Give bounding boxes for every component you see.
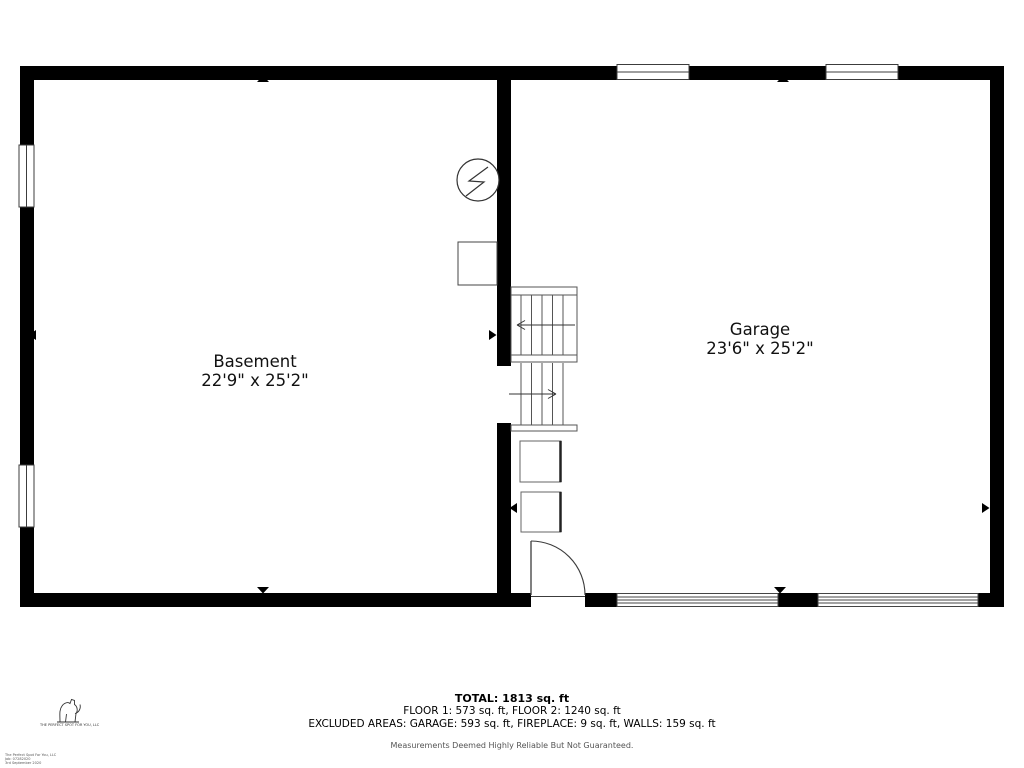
fine-print-line-3: 3rd September 2020 bbox=[5, 761, 95, 765]
area-summary: TOTAL: 1813 sq. ft FLOOR 1: 573 sq. ft, … bbox=[0, 693, 1024, 753]
center-wall-upper bbox=[497, 66, 511, 366]
stairs-upper-run-icon bbox=[511, 287, 577, 362]
garage-room-name: Garage bbox=[635, 320, 885, 339]
garage-door-right-icon bbox=[818, 594, 978, 607]
marker-basement-bottom-icon bbox=[257, 587, 269, 594]
marker-garage-bottom-icon bbox=[774, 587, 786, 594]
garage-room-dimensions: 23'6" x 25'2" bbox=[635, 339, 885, 358]
garage-top-window-right-icon bbox=[826, 65, 898, 80]
floor-areas-text: FLOOR 1: 573 sq. ft, FLOOR 2: 1240 sq. f… bbox=[0, 705, 1024, 717]
excluded-areas-text: EXCLUDED AREAS: GARAGE: 593 sq. ft, FIRE… bbox=[0, 718, 1024, 730]
company-name-text: THE PERFECT SPOT FOR YOU, LLC bbox=[40, 723, 88, 727]
center-wall-lower bbox=[497, 423, 511, 607]
garage-door-left-icon bbox=[617, 594, 778, 607]
garage-top-window-left-icon bbox=[617, 65, 689, 80]
electrical-meter-icon bbox=[457, 159, 499, 201]
disclaimer-text: Measurements Deemed Highly Reliable But … bbox=[0, 740, 1024, 752]
marker-garage-right-icon bbox=[982, 503, 990, 513]
basement-left-window-lower-icon bbox=[19, 465, 34, 527]
garage-room-label: Garage 23'6" x 25'2" bbox=[635, 320, 885, 358]
basement-room-name: Basement bbox=[130, 352, 380, 371]
entry-door-icon bbox=[531, 541, 585, 607]
fine-print: The Perfect Spot For You, LLC Job: 07282… bbox=[5, 753, 95, 765]
floor-plan-page: Basement 22'9" x 25'2" Garage 23'6" x 25… bbox=[0, 0, 1024, 768]
marker-basement-right-icon bbox=[489, 330, 497, 340]
total-area-text: TOTAL: 1813 sq. ft bbox=[0, 693, 1024, 705]
right-wall bbox=[990, 66, 1004, 607]
stairs-lower-run-icon bbox=[509, 363, 577, 431]
basement-room-dimensions: 22'9" x 25'2" bbox=[130, 371, 380, 390]
windows bbox=[19, 65, 898, 528]
equipment-square-upper-icon bbox=[520, 441, 561, 482]
basement-left-window-upper-icon bbox=[19, 145, 34, 207]
stairs-direction-arrow-right bbox=[509, 390, 556, 399]
equipment-square-lower-icon bbox=[521, 492, 561, 532]
basement-room-label: Basement 22'9" x 25'2" bbox=[130, 352, 380, 390]
utility-box-icon bbox=[458, 242, 497, 285]
